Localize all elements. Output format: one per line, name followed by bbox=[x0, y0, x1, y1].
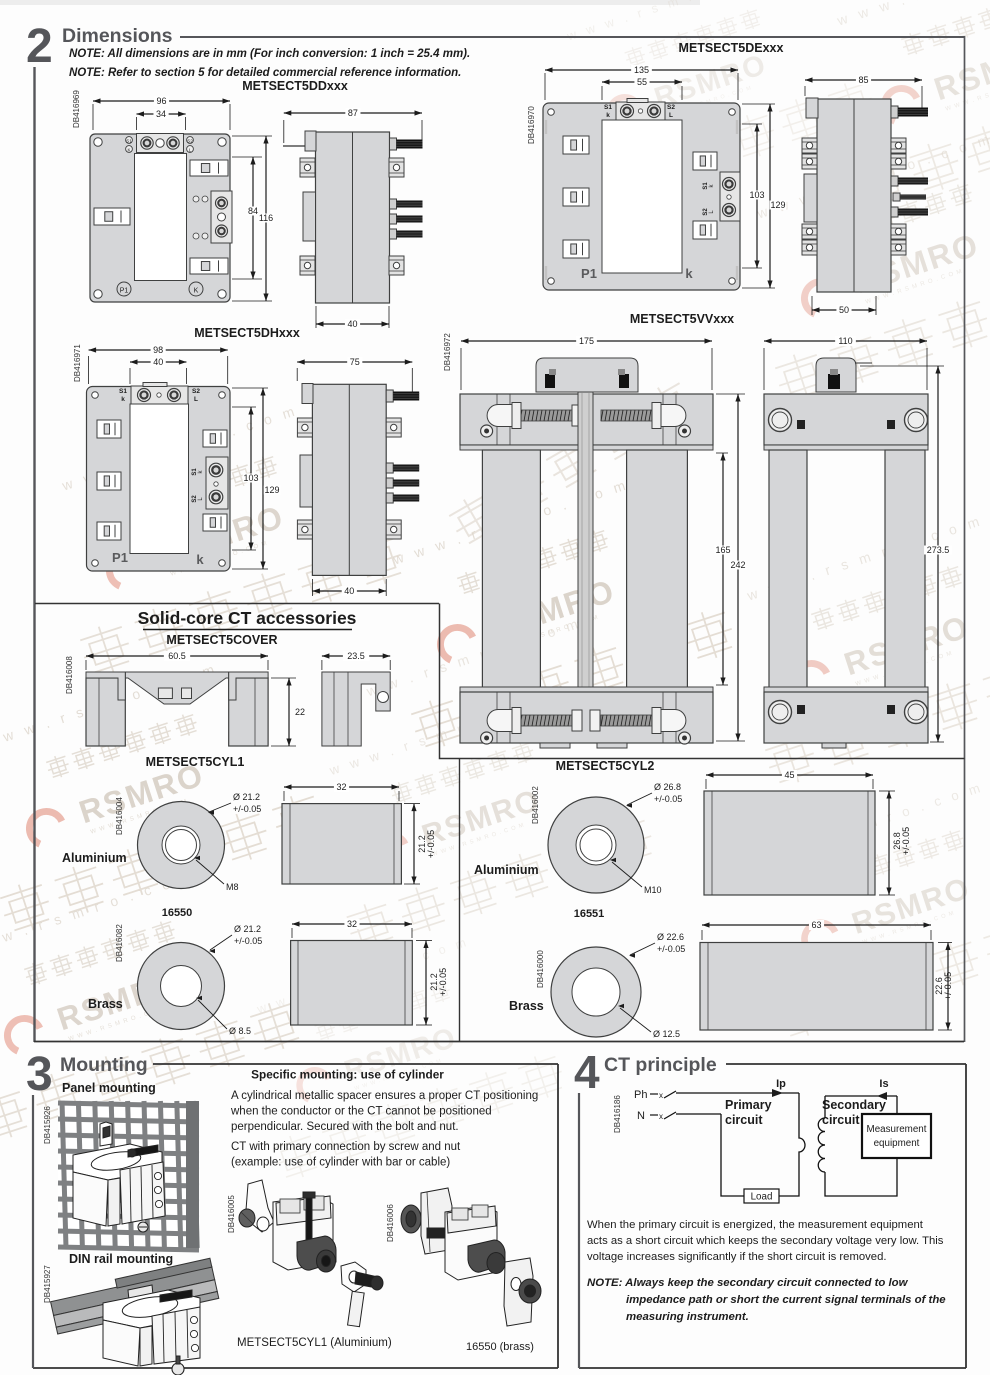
svg-text:METSECT5DExxx: METSECT5DExxx bbox=[679, 41, 784, 55]
svg-text:when the conductor or the CT c: when the conductor or the CT cannot be p… bbox=[230, 1106, 492, 1118]
svg-text:34: 34 bbox=[156, 109, 166, 119]
svg-text:Ø 12.5: Ø 12.5 bbox=[653, 1029, 680, 1039]
svg-text:circuit: circuit bbox=[725, 1113, 763, 1127]
svg-text:Ø 26.8: Ø 26.8 bbox=[654, 782, 681, 792]
svg-text:circuit: circuit bbox=[822, 1113, 860, 1127]
svg-text:55: 55 bbox=[637, 77, 647, 87]
svg-text:METSECT5COVER: METSECT5COVER bbox=[166, 633, 277, 647]
svg-text:Secondary: Secondary bbox=[822, 1098, 886, 1112]
svg-text:32: 32 bbox=[347, 919, 357, 929]
svg-text:METSECT5CYL1: METSECT5CYL1 bbox=[146, 755, 245, 769]
svg-text:k: k bbox=[685, 266, 693, 281]
svg-text:84: 84 bbox=[248, 206, 258, 216]
svg-text:+/-0.05: +/-0.05 bbox=[943, 972, 953, 1000]
svg-text:equipment: equipment bbox=[874, 1138, 920, 1149]
svg-text:45: 45 bbox=[784, 770, 794, 780]
svg-text:N: N bbox=[637, 1110, 645, 1122]
svg-text:x: x bbox=[659, 1091, 663, 1100]
svg-text:NOTE: All dimensions are in mm: NOTE: All dimensions are in mm (For inch… bbox=[69, 48, 470, 60]
svg-text:DB416006: DB416006 bbox=[386, 1204, 395, 1242]
svg-text:perpendicular. Secured with th: perpendicular. Secured with the bolt and… bbox=[231, 1121, 459, 1133]
svg-text:+/-0.05: +/-0.05 bbox=[657, 944, 685, 954]
svg-text:S2: S2 bbox=[192, 388, 200, 395]
svg-text:When the primary circuit is en: When the primary circuit is energized, t… bbox=[587, 1219, 924, 1231]
svg-text:+/-0.05: +/-0.05 bbox=[654, 794, 682, 804]
svg-text:16550: 16550 bbox=[162, 907, 193, 919]
svg-text:L: L bbox=[194, 396, 198, 403]
svg-text:2: 2 bbox=[26, 20, 53, 73]
svg-text:16550 (brass): 16550 (brass) bbox=[466, 1341, 534, 1353]
svg-text:116: 116 bbox=[259, 213, 273, 223]
svg-text:x: x bbox=[659, 1112, 663, 1121]
svg-text:4: 4 bbox=[574, 1046, 600, 1098]
svg-text:K: K bbox=[194, 287, 199, 294]
svg-text:voltage increases significantl: voltage increases significantly if the s… bbox=[587, 1251, 887, 1263]
svg-text:k: k bbox=[606, 112, 610, 119]
svg-text:+/-0.05: +/-0.05 bbox=[901, 827, 911, 855]
svg-text:k: k bbox=[196, 552, 204, 567]
svg-text:S2: S2 bbox=[667, 104, 675, 111]
svg-text:+/-0.05: +/-0.05 bbox=[438, 968, 448, 996]
svg-text:L: L bbox=[669, 112, 673, 119]
svg-text:k: k bbox=[121, 396, 125, 403]
svg-text:DB416005: DB416005 bbox=[227, 1195, 236, 1233]
svg-text:110: 110 bbox=[838, 336, 852, 346]
svg-text:METSECT5CYL2: METSECT5CYL2 bbox=[556, 759, 655, 773]
svg-text:Ø 22.6: Ø 22.6 bbox=[657, 932, 684, 942]
svg-text:Solid-core CT accessories: Solid-core CT accessories bbox=[138, 608, 357, 628]
svg-text:+/-0.05: +/-0.05 bbox=[233, 804, 261, 814]
svg-text:(example: use of cylinder with: (example: use of cylinder with bar or ca… bbox=[231, 1157, 450, 1169]
svg-text:Mounting: Mounting bbox=[60, 1054, 148, 1076]
svg-text:85: 85 bbox=[858, 75, 868, 85]
svg-text:A cylindrical metallic spacer: A cylindrical metallic spacer ensures a … bbox=[231, 1090, 538, 1102]
svg-text:CT principle: CT principle bbox=[604, 1054, 717, 1076]
svg-text:Aluminium: Aluminium bbox=[474, 863, 539, 877]
svg-text:Primary: Primary bbox=[725, 1098, 772, 1112]
svg-text:40: 40 bbox=[347, 319, 357, 329]
svg-text:DB416972: DB416972 bbox=[443, 333, 452, 371]
svg-text:40: 40 bbox=[344, 586, 354, 596]
svg-text:P1: P1 bbox=[112, 550, 128, 565]
svg-text:M10: M10 bbox=[644, 885, 662, 895]
svg-text:103: 103 bbox=[243, 473, 258, 483]
svg-text:DB416000: DB416000 bbox=[536, 950, 545, 988]
svg-text:16551: 16551 bbox=[574, 908, 605, 920]
svg-text:Panel mounting: Panel mounting bbox=[62, 1081, 156, 1095]
svg-text:175: 175 bbox=[579, 336, 594, 346]
svg-text:DB415927: DB415927 bbox=[43, 1265, 52, 1303]
svg-text:165: 165 bbox=[715, 545, 730, 555]
svg-text:+/-0.05: +/-0.05 bbox=[426, 830, 436, 858]
svg-text:METSECT5VVxxx: METSECT5VVxxx bbox=[630, 312, 734, 326]
svg-text:129: 129 bbox=[770, 200, 785, 210]
svg-text:DB416008: DB416008 bbox=[65, 656, 74, 694]
svg-text:Ø 21.2: Ø 21.2 bbox=[233, 792, 260, 802]
svg-text:acts as a short circuit which: acts as a short circuit which keeps the … bbox=[587, 1235, 944, 1247]
svg-text:242: 242 bbox=[730, 560, 745, 570]
svg-text:23.5: 23.5 bbox=[347, 651, 365, 661]
svg-text:Is: Is bbox=[879, 1078, 888, 1090]
svg-text:METSECT5CYL1 (Aluminium): METSECT5CYL1 (Aluminium) bbox=[237, 1337, 392, 1349]
svg-text:Dimensions: Dimensions bbox=[62, 25, 173, 47]
svg-text:S1: S1 bbox=[126, 139, 132, 144]
svg-text:+/-0.05: +/-0.05 bbox=[234, 936, 262, 946]
svg-text:273.5: 273.5 bbox=[927, 545, 950, 555]
svg-text:87: 87 bbox=[348, 108, 358, 118]
svg-text:135: 135 bbox=[634, 65, 649, 75]
svg-text:DB416004: DB416004 bbox=[115, 797, 124, 835]
svg-text:DB416082: DB416082 bbox=[115, 924, 124, 962]
svg-text:DB416970: DB416970 bbox=[527, 106, 536, 144]
svg-text:DB416186: DB416186 bbox=[613, 1095, 622, 1133]
svg-text:129: 129 bbox=[264, 485, 279, 495]
svg-text:METSECT5DHxxx: METSECT5DHxxx bbox=[194, 326, 300, 340]
svg-text:Ip: Ip bbox=[776, 1078, 786, 1090]
svg-text:32: 32 bbox=[336, 782, 346, 792]
svg-text:NOTE: Always keep the secondar: NOTE: Always keep the secondary circuit … bbox=[587, 1277, 909, 1289]
svg-text:Aluminium: Aluminium bbox=[62, 851, 127, 865]
svg-text:DB416002: DB416002 bbox=[531, 786, 540, 824]
svg-text:measuring instrument.: measuring instrument. bbox=[626, 1311, 749, 1323]
svg-text:Measurement: Measurement bbox=[867, 1124, 927, 1135]
svg-text:98: 98 bbox=[153, 345, 163, 355]
svg-text:impedance path or short the cu: impedance path or short the current sign… bbox=[626, 1294, 946, 1306]
svg-text:K: K bbox=[127, 148, 130, 153]
svg-text:22: 22 bbox=[295, 707, 305, 717]
svg-text:60.5: 60.5 bbox=[168, 651, 186, 661]
svg-text:CT with primary connection by: CT with primary connection by screw and … bbox=[231, 1141, 461, 1153]
svg-text:P1: P1 bbox=[120, 287, 129, 294]
svg-text:S1: S1 bbox=[119, 388, 127, 395]
svg-text:METSECT5DDxxx: METSECT5DDxxx bbox=[242, 79, 348, 93]
svg-text:40: 40 bbox=[153, 357, 163, 367]
svg-text:DB415926: DB415926 bbox=[43, 1106, 52, 1144]
svg-text:96: 96 bbox=[156, 96, 166, 106]
svg-text:DB416971: DB416971 bbox=[73, 344, 82, 382]
svg-text:Ph: Ph bbox=[634, 1089, 647, 1101]
svg-text:50: 50 bbox=[839, 305, 849, 315]
svg-text:DIN rail mounting: DIN rail mounting bbox=[69, 1252, 173, 1266]
svg-text:Load: Load bbox=[751, 1192, 773, 1203]
svg-text:Brass: Brass bbox=[509, 999, 544, 1013]
svg-text:Brass: Brass bbox=[88, 997, 123, 1011]
svg-text:Specific mounting: use of cyli: Specific mounting: use of cylinder bbox=[251, 1068, 444, 1082]
svg-text:M8: M8 bbox=[226, 882, 239, 892]
svg-text:DB416969: DB416969 bbox=[72, 90, 81, 128]
svg-text:S1: S1 bbox=[604, 104, 612, 111]
svg-text:63: 63 bbox=[811, 920, 821, 930]
svg-text:S2: S2 bbox=[187, 139, 193, 144]
svg-text:Ø 21.2: Ø 21.2 bbox=[234, 924, 261, 934]
svg-text:3: 3 bbox=[26, 1048, 53, 1101]
svg-text:NOTE: Refer to section 5 for d: NOTE: Refer to section 5 for detailed co… bbox=[69, 67, 461, 79]
svg-text:P1: P1 bbox=[581, 266, 597, 281]
svg-text:103: 103 bbox=[749, 190, 764, 200]
svg-text:75: 75 bbox=[350, 357, 360, 367]
svg-text:Ø 8.5: Ø 8.5 bbox=[229, 1026, 251, 1036]
